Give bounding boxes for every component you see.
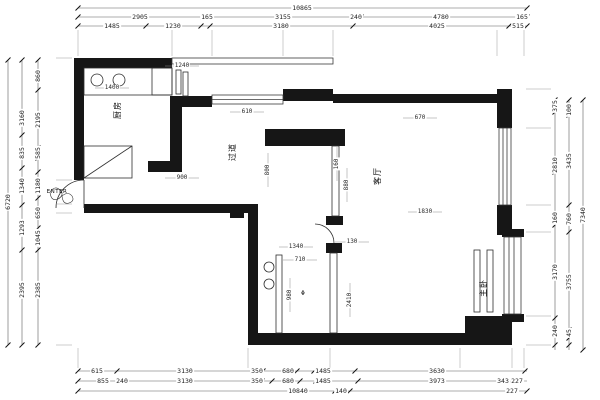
dimension-label: 1400 [104,85,120,91]
dimension-label: 3160 [19,109,26,127]
balcony-overhang [172,58,333,64]
dimension-label: 165 [200,14,214,21]
interior-walls-group [276,146,493,333]
dimension-label: 3130 [176,378,194,385]
plan-drawing [0,0,600,400]
wall [326,216,343,225]
dimension-label: 1485 [103,23,121,30]
room-label-living-room: 客厅 [374,167,382,185]
wall [333,94,497,103]
dimension-label: 160 [552,211,559,225]
dimension-label: 855 [96,378,110,385]
partition [276,255,282,333]
wall [148,161,182,172]
dimension-label: 343 [496,378,510,385]
bay-window [504,237,521,314]
dimension-label: 1045 [35,229,42,247]
dimension-label: 1830 [417,209,433,215]
dimension-label: 1240 [174,63,190,69]
entry-label: ENTER [47,189,68,195]
dimension-label: 6720 [5,193,12,211]
dimension-label: 3130 [176,368,194,375]
wall [502,314,524,322]
dimension-label: 227 [505,388,519,395]
basin [264,279,274,289]
stove-burner [91,74,103,86]
bathroom-door-arc [315,224,334,243]
dimension-label: 350 [250,378,264,385]
dimension-label: 10865 [291,5,313,12]
dimension-label: 900 [176,175,189,181]
dimension-label: 980 [287,289,293,302]
walls-group [74,58,524,345]
room-label-kitchen: 厨房 [114,101,122,119]
dimension-label: 1485 [314,368,332,375]
dimension-label: 350 [250,368,264,375]
sliding-door-panel [183,72,188,96]
dimension-label: 227 [510,378,524,385]
dimension-label: 670 [414,115,427,121]
wall [230,204,244,218]
dimension-label: 10840 [287,388,309,395]
dimension-label: 860 [35,69,42,83]
floor-drain-symbol: Φ [300,290,306,297]
dimension-label: 1230 [164,23,182,30]
dimension-label: 2385 [35,281,42,299]
wall [182,96,212,107]
room-label-master-bedroom: 主卧 [480,279,488,297]
dimension-label: 240 [349,14,363,21]
dimension-label: 585 [35,146,42,160]
dimension-label: 3180 [272,23,290,30]
partition [332,146,339,216]
dimension-label: 130 [346,239,359,245]
dimension-label: 100 [566,103,573,117]
dimension-label: 1340 [288,244,304,250]
dimension-label: 2195 [35,111,42,129]
wall [283,89,333,101]
kitchen-appliance [152,68,172,95]
dimension-label: 45 [566,328,573,338]
dimension-label: 240 [115,378,129,385]
dimension-label: 3630 [428,368,446,375]
dimension-label: 3435 [566,152,573,170]
dimension-label: 3170 [552,263,559,281]
dimension-label: 1293 [19,219,26,237]
right-window [499,128,511,205]
room-label-hallway: 过道 [229,143,237,161]
dimension-label: 4780 [432,14,450,21]
dimension-label: 165 [515,14,529,21]
dimension-label: 615 [90,368,104,375]
dimension-label: 760 [566,212,573,226]
wall [248,213,258,345]
floor-plan-canvas: 厨房 过道 客厅 主卧 ENTER Φ 10865290516531552404… [0,0,600,400]
dimension-label: 1485 [314,378,332,385]
wall [74,58,84,180]
dimension-label: 4025 [428,23,446,30]
dimension-label: 515 [511,23,525,30]
kitchen-counter [84,68,172,95]
dimension-label: 1180 [35,177,42,195]
dimension-label: 2905 [131,14,149,21]
wall [265,129,345,146]
sliding-door-panel [176,70,181,94]
wall [80,58,172,68]
dimension-label: 680 [281,368,295,375]
dimension-label: 1340 [19,177,26,195]
dimension-label: 7340 [580,206,587,224]
dimension-label: 800 [265,164,271,177]
wall [170,96,182,172]
dimension-label: 710 [294,257,307,263]
dimension-label: 2395 [19,281,26,299]
basin [264,262,274,272]
wall [497,89,512,128]
partition [330,253,337,333]
dimension-label: 2810 [552,156,559,174]
dimension-label: 3155 [274,14,292,21]
dimension-label: 140 [334,388,348,395]
dimension-label: 2410 [347,292,353,308]
dimension-label: 880 [344,179,350,192]
dimension-label: 3755 [566,273,573,291]
wall [502,229,524,237]
dimension-label: 835 [19,146,26,160]
dimension-label: 680 [281,378,295,385]
dimension-label: 160 [334,158,340,171]
dimension-label: 610 [241,109,254,115]
dimension-label: 650 [35,206,42,220]
dimension-label: 240 [552,324,559,338]
dimension-label: 3973 [428,378,446,385]
dimension-label: 375 [552,99,559,113]
wall [326,243,342,253]
